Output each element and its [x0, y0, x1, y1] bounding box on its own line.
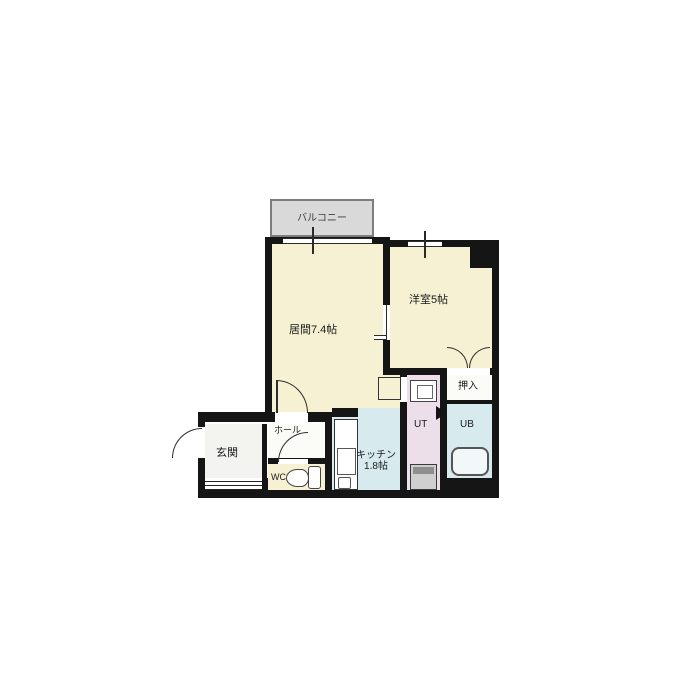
kitchen-label-line1: キッチン — [350, 450, 402, 461]
kitchen-stove — [338, 477, 351, 489]
wall — [443, 400, 499, 404]
balcony-label: バルコニー — [297, 213, 347, 224]
sliding-door-mark — [374, 335, 386, 340]
living-label: 居間7.4帖 — [289, 324, 337, 336]
closet-label: 押入 — [458, 381, 478, 392]
wall — [265, 237, 272, 417]
wc-label: WC — [271, 473, 286, 483]
sliding-door-line — [386, 305, 387, 340]
entrance-label: 玄関 — [216, 447, 238, 459]
balcony-area: バルコニー — [270, 199, 374, 237]
washing-machine-panel — [413, 467, 434, 474]
kitchen-label: キッチン 1.8帖 — [350, 450, 402, 472]
entrance-step-lines — [205, 478, 262, 490]
window-tick — [424, 231, 426, 258]
bath-entry-arrow — [436, 406, 447, 420]
wall — [198, 412, 332, 422]
entrance-door-arc — [172, 428, 202, 458]
floor-plan: バルコニー — [0, 0, 700, 700]
corner-pillar — [470, 247, 492, 268]
washing-machine — [410, 464, 437, 490]
washbasin-bowl — [417, 385, 433, 399]
utility-door-opening — [400, 377, 407, 402]
wall — [443, 478, 499, 492]
hall-label: ホール — [274, 426, 301, 436]
wall — [325, 412, 332, 498]
window-tick — [312, 227, 314, 254]
toilet-tank — [308, 466, 321, 489]
living-window — [283, 238, 372, 244]
wall — [262, 424, 267, 478]
door-leaf — [276, 380, 278, 413]
western-room-label: 洋室5帖 — [409, 294, 448, 306]
open-door-symbol — [378, 377, 401, 400]
toilet-bowl — [286, 469, 309, 487]
wall — [385, 240, 499, 247]
kitchen-label-line2: 1.8帖 — [350, 461, 402, 472]
wall — [332, 408, 358, 417]
washbasin — [410, 380, 437, 402]
door-opening — [275, 412, 308, 422]
closet-door-opening — [447, 368, 490, 375]
bathtub — [451, 447, 489, 476]
unit-bath-label: UB — [460, 419, 474, 430]
utility-label: UT — [414, 419, 427, 430]
